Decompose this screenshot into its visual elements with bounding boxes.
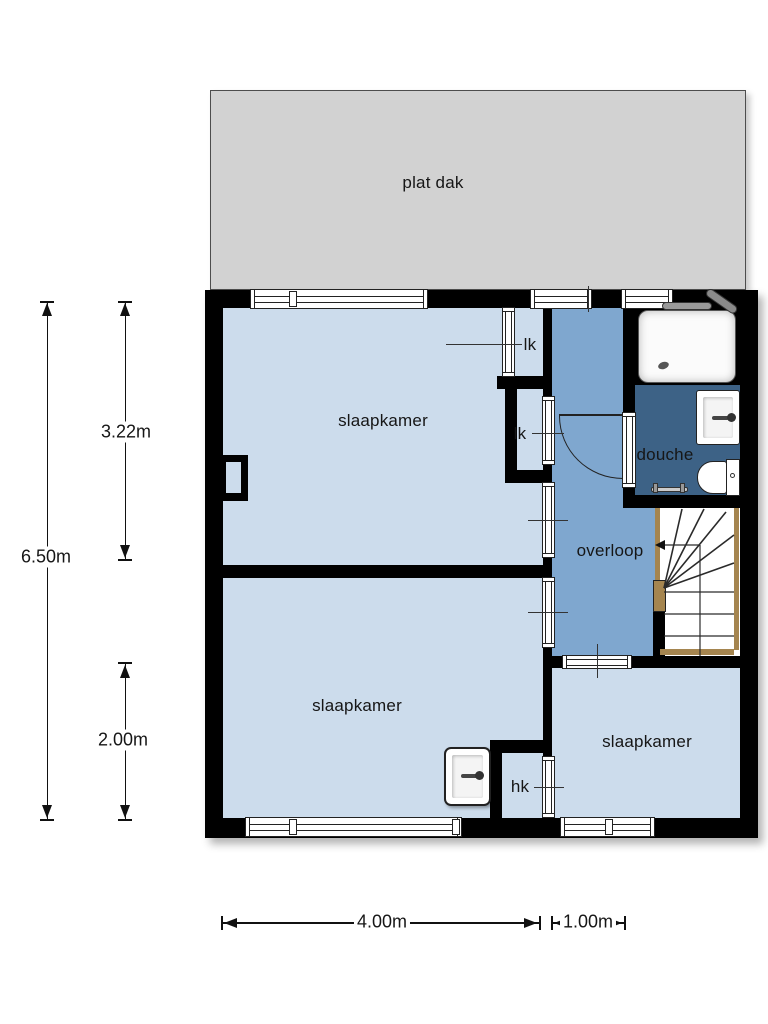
window-mullion (452, 819, 460, 835)
bedroom-top-left-floor (223, 308, 543, 565)
dim-label-upper-height: 3.22m (98, 422, 154, 443)
linen-closet-middle-label: lk (514, 424, 527, 444)
door-center-tick (528, 612, 568, 613)
dim-arrow-down (42, 805, 52, 818)
dim-arrow-up (120, 303, 130, 316)
dim-arrow-up (42, 303, 52, 316)
radiator-foot (680, 483, 685, 493)
door-jamb (542, 813, 555, 818)
window-landing (530, 289, 592, 309)
shower-grab-bar (662, 302, 712, 310)
dim-end-cap (118, 819, 132, 821)
dim-arrow-left (224, 918, 237, 928)
toilet-flush-button (730, 473, 735, 478)
door-jamb (542, 643, 555, 648)
door-jamb (562, 655, 567, 669)
window-mullion (605, 819, 613, 835)
dim-end-cap (551, 916, 553, 930)
door-linen-closet-middle (542, 396, 555, 465)
door-center-tick (597, 644, 598, 678)
cupboard-left-wall (490, 740, 502, 818)
window-frame-cap (650, 817, 655, 837)
window-frame-cap (530, 289, 535, 309)
dim-label-landing-width: 1.00m (560, 912, 616, 933)
shower-room-label: douche (637, 445, 694, 465)
door-jamb (542, 553, 555, 558)
flat-roof-area: plat dak (210, 90, 746, 290)
walk-line-arrow (655, 540, 665, 550)
linen-closet-top-leader (446, 344, 522, 345)
landing-floor (552, 308, 623, 656)
dim-label-main-width: 4.00m (354, 912, 410, 933)
window-mullion (289, 291, 297, 307)
door-shower-room (622, 412, 636, 488)
dim-end-cap (118, 559, 132, 561)
linen-closet-middle-leader (532, 433, 564, 434)
bedroom-bottom-right-label: slaapkamer (602, 732, 692, 752)
door-jamb (542, 482, 555, 487)
radiator-foot (653, 483, 658, 493)
staircase (655, 505, 740, 658)
window-bedroom-bottom-left (245, 817, 462, 837)
door-jamb (622, 483, 636, 488)
landing-label: overloop (577, 541, 644, 561)
door-jamb (502, 372, 515, 377)
dim-arrow-down (120, 805, 130, 818)
cupboard-label: hk (511, 777, 529, 797)
window-frame-cap (250, 289, 255, 309)
cupboard-leader (534, 787, 564, 788)
dim-arrow-down (120, 545, 130, 558)
window-frame-cap (560, 817, 565, 837)
door-jamb (542, 396, 555, 401)
door-jamb (542, 460, 555, 465)
dim-arrow-right (524, 918, 537, 928)
bedroom-top-left-label: slaapkamer (338, 411, 428, 431)
door-linen-closet-top (502, 307, 515, 377)
linen-closet-top-label: lk (524, 335, 537, 355)
toilet-bowl (697, 461, 727, 494)
dim-label-lower-height: 2.00m (95, 730, 151, 751)
shower-tray (638, 310, 736, 383)
door-jamb (627, 655, 632, 669)
door-center-tick (528, 520, 568, 521)
window-bedroom-top-left (250, 289, 428, 309)
door-jamb (502, 307, 515, 312)
flat-roof-label: plat dak (402, 173, 463, 193)
bedroom-bottom-left-label: slaapkamer (312, 696, 402, 716)
faucet-knob (727, 413, 736, 422)
dim-arrow-up (120, 665, 130, 678)
dim-end-cap (118, 662, 132, 664)
chimney-duct-inner (226, 462, 241, 493)
dim-end-cap (221, 916, 223, 930)
dim-end-cap (624, 916, 626, 930)
window-frame-cap (621, 289, 626, 309)
window-bedroom-bottom-right (560, 817, 655, 837)
faucet-knob (475, 771, 484, 780)
dim-end-cap (539, 916, 541, 930)
floor-plan-canvas: plat dak (0, 0, 768, 1024)
landing-floor-extension (623, 508, 655, 656)
dim-end-cap (40, 819, 54, 821)
window-frame-cap (245, 817, 250, 837)
window-mullion (289, 819, 297, 835)
dim-label-overall-height: 6.50m (18, 547, 74, 568)
window-center-tick (588, 286, 589, 312)
door-jamb (542, 756, 555, 761)
window-frame-cap (423, 289, 428, 309)
door-jamb (622, 412, 636, 417)
door-jamb (542, 577, 555, 582)
